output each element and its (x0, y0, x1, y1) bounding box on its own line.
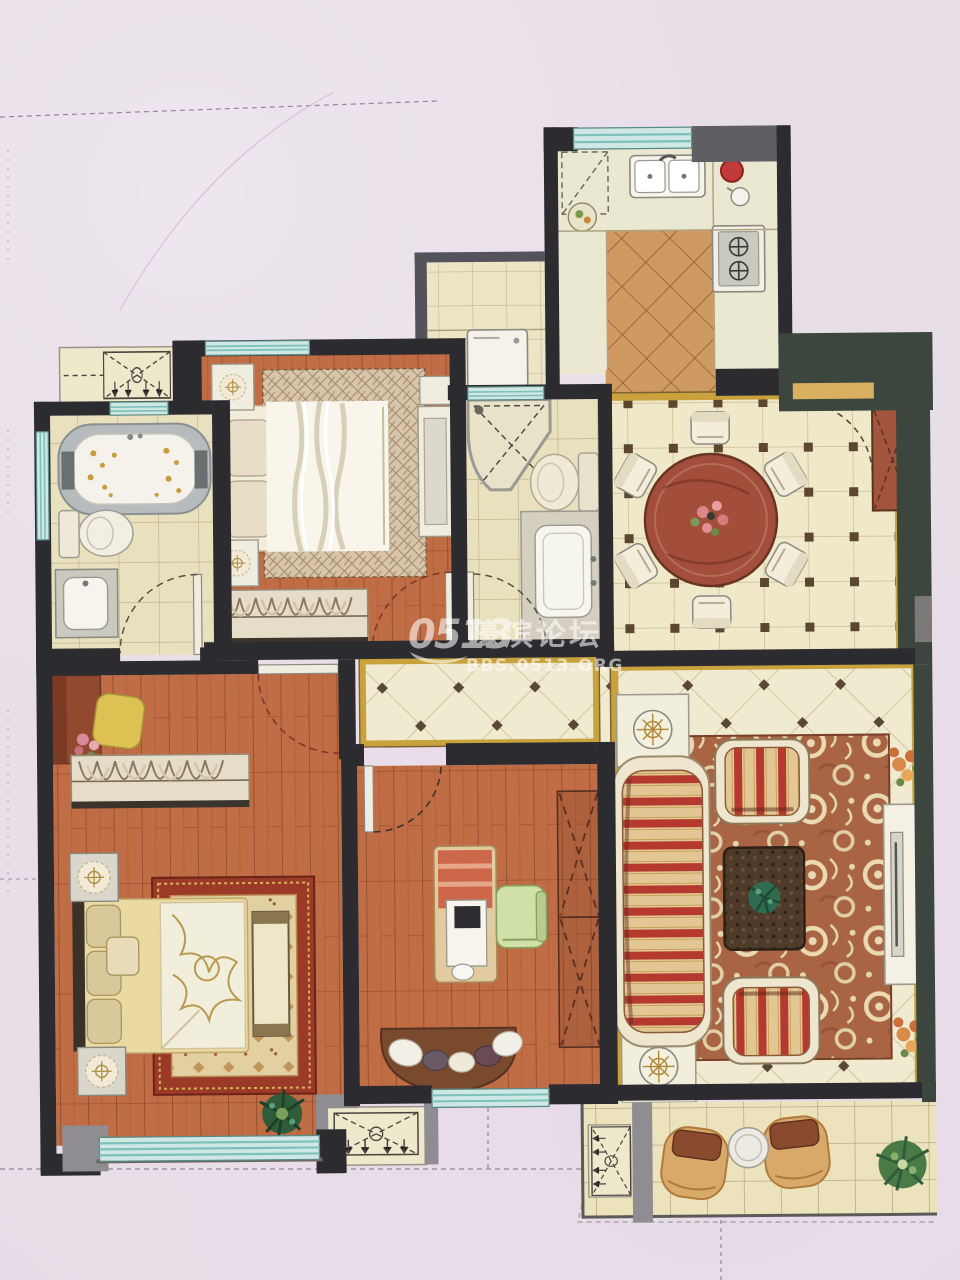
master-nightstand-bottom (78, 1047, 126, 1095)
bed-bench (252, 912, 289, 1036)
watermark-site-url: BBS.0513.ORG (466, 656, 624, 676)
floor-plan-drawing: 0513 濠滨论坛 BBS.0513.ORG (0, 0, 960, 1280)
master-nightstand-top (70, 853, 118, 901)
monitor-icon (454, 906, 480, 928)
tv-cabinet (883, 804, 919, 984)
desk-chair (92, 692, 146, 750)
study (357, 762, 602, 1093)
balcony (582, 1086, 937, 1223)
bedroom-2-window (205, 340, 309, 355)
armchair-top (715, 739, 810, 824)
kitchen-red-pot (721, 160, 743, 182)
ac-platform-top (59, 340, 207, 407)
vanity-1 (55, 569, 118, 638)
living-room (610, 660, 924, 1103)
coffee-table-plant (748, 881, 780, 913)
bathroom-2-window (468, 386, 544, 400)
master-bed (72, 898, 248, 1054)
kitchen-floor (606, 230, 714, 372)
master-wardrobe (71, 754, 249, 809)
armchair-bottom (723, 977, 820, 1064)
bedroom-2 (201, 352, 455, 654)
balcony-table (728, 1128, 768, 1168)
master-headboard (72, 901, 85, 1051)
dresser (418, 376, 454, 536)
study-closet (557, 791, 601, 1047)
kitchen-window (574, 127, 692, 149)
bed-2 (211, 401, 389, 553)
bathroom-1-window-side (36, 432, 49, 540)
master-window (99, 1135, 319, 1161)
bathroom-1-window-top (110, 402, 168, 416)
drain-platform (588, 1125, 631, 1197)
bathroom-1 (50, 414, 218, 655)
entry-threshold (793, 383, 874, 400)
study-desk (434, 846, 497, 983)
mouse-icon (452, 964, 474, 980)
coffee-table (724, 847, 805, 950)
kitchen (558, 147, 779, 399)
toilet-2 (530, 453, 599, 512)
watermark-site-name: 濠滨论坛 (470, 618, 602, 653)
dining-room (602, 390, 914, 659)
sofa (613, 756, 712, 1047)
wardrobe-2 (216, 589, 368, 646)
master-bedroom (52, 664, 344, 1145)
study-window (432, 1088, 549, 1107)
balcony-chair-2 (761, 1114, 833, 1191)
floor-plan-photo: 0513 濠滨论坛 BBS.0513.ORG (0, 0, 960, 1280)
kitchen-plate (568, 203, 596, 231)
toilet-1 (59, 510, 133, 558)
balcony-post (632, 1103, 653, 1223)
tv-icon (896, 842, 897, 946)
gas-stove (712, 226, 765, 292)
balcony-chair-1 (658, 1124, 731, 1202)
study-chair (496, 885, 547, 947)
washing-machine (467, 330, 528, 391)
bathtub (58, 423, 211, 514)
